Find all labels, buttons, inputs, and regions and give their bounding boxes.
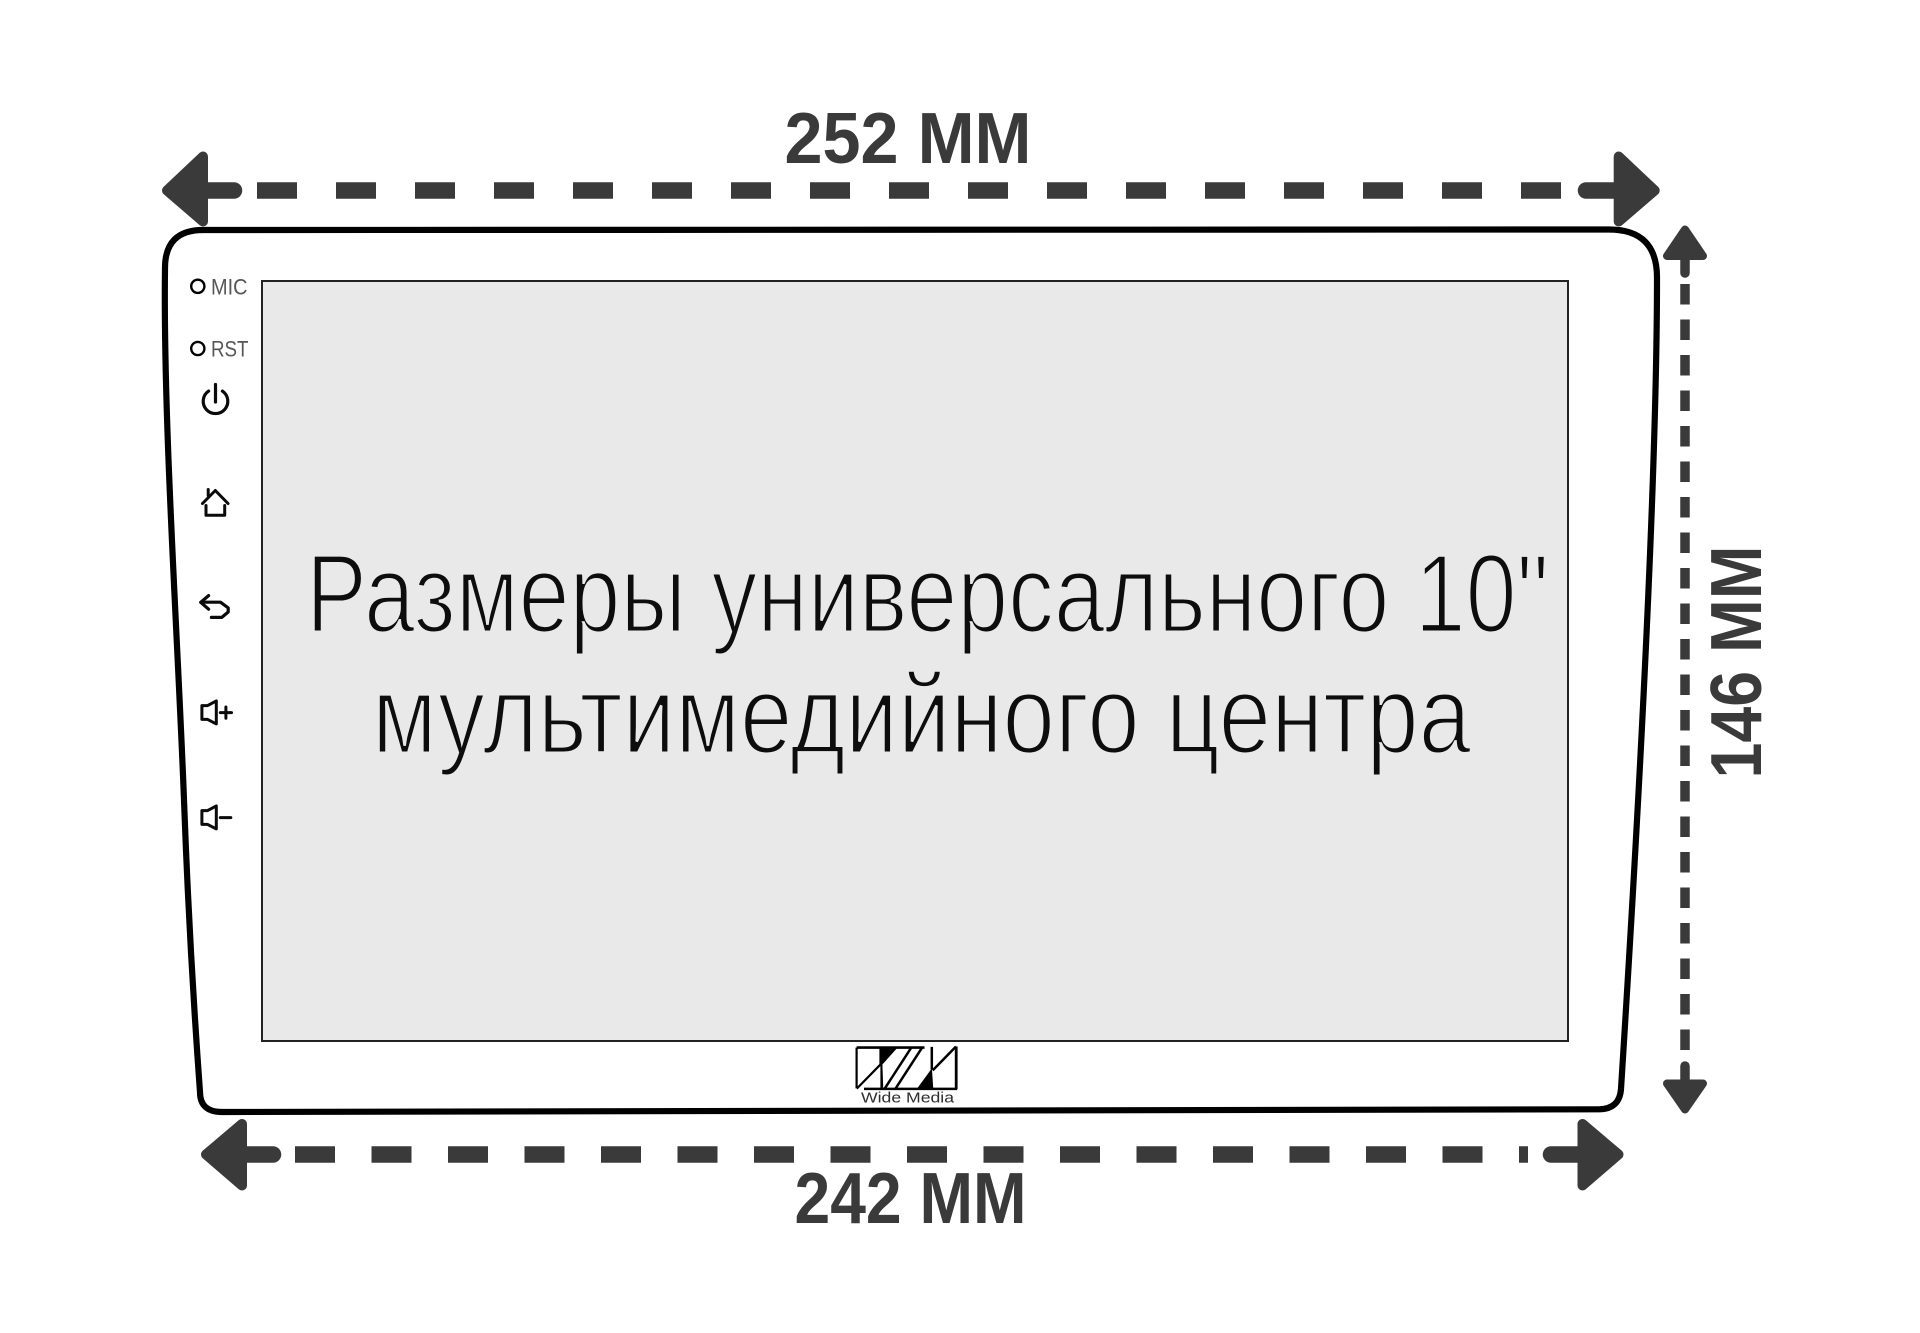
- svg-text:Wide Media: Wide Media: [861, 1091, 955, 1107]
- svg-text:RST: RST: [211, 337, 249, 362]
- svg-text:мультимедийного центра: мультимедийного центра: [372, 653, 1471, 777]
- svg-text:252 MM: 252 MM: [785, 99, 1032, 179]
- svg-text:242 MM: 242 MM: [795, 1159, 1027, 1239]
- svg-text:Размеры универсального 10": Размеры универсального 10": [306, 532, 1549, 656]
- svg-text:146 MM: 146 MM: [1697, 546, 1777, 779]
- svg-text:MIC: MIC: [211, 275, 248, 300]
